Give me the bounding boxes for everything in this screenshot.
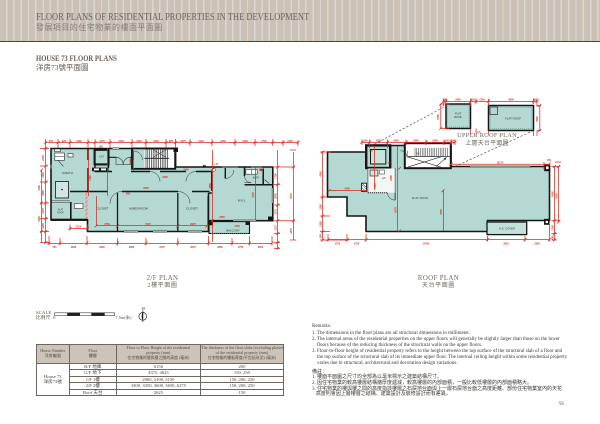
svg-text:4500: 4500 — [508, 98, 514, 101]
svg-text:2975: 2975 — [190, 223, 196, 226]
svg-text:4125: 4125 — [234, 225, 240, 228]
svg-text:2250: 2250 — [258, 246, 264, 249]
svg-text:2250: 2250 — [220, 140, 226, 143]
svg-text:B.R.1: B.R.1 — [238, 199, 246, 203]
svg-text:1275: 1275 — [275, 225, 278, 231]
svg-text:FLAT ROOF: FLAT ROOF — [505, 116, 521, 120]
svg-text:11175: 11175 — [497, 161, 504, 164]
svg-text:FLAT: FLAT — [58, 209, 64, 212]
svg-text:1975: 1975 — [42, 208, 45, 214]
svg-text:2450: 2450 — [437, 114, 440, 120]
svg-text:1950: 1950 — [153, 140, 159, 143]
svg-text:M.BATH: M.BATH — [62, 171, 73, 175]
svg-text:3125: 3125 — [252, 192, 255, 198]
svg-text:4700: 4700 — [344, 188, 350, 191]
svg-text:1750: 1750 — [354, 242, 360, 245]
svg-text:2750: 2750 — [104, 223, 110, 226]
svg-text:2825: 2825 — [71, 246, 77, 249]
svg-text:3600: 3600 — [38, 216, 41, 222]
svg-text:1250: 1250 — [479, 98, 485, 101]
svg-text:2150: 2150 — [76, 226, 82, 229]
svg-text:2500: 2500 — [536, 116, 539, 122]
svg-text:1425: 1425 — [287, 140, 293, 143]
svg-text:2300: 2300 — [534, 242, 540, 245]
svg-text:650: 650 — [551, 235, 554, 240]
svg-text:1575: 1575 — [275, 209, 278, 215]
svg-text:1750: 1750 — [238, 246, 244, 249]
svg-text:1000: 1000 — [183, 169, 189, 172]
svg-text:1225: 1225 — [374, 183, 377, 189]
svg-text:3175: 3175 — [159, 246, 165, 249]
svg-text:(−7): (−7) — [214, 163, 219, 166]
svg-text:1150: 1150 — [89, 175, 92, 181]
svg-text:4150: 4150 — [38, 185, 41, 191]
svg-text:2850: 2850 — [129, 246, 135, 249]
svg-text:150: 150 — [443, 98, 448, 101]
svg-text:4850: 4850 — [209, 183, 212, 189]
svg-text:150: 150 — [547, 159, 552, 162]
svg-text:1650: 1650 — [76, 140, 82, 143]
svg-text:2225: 2225 — [162, 176, 168, 179]
svg-text:4500: 4500 — [320, 171, 323, 177]
svg-text:150: 150 — [363, 139, 368, 142]
svg-text:2325: 2325 — [42, 155, 45, 161]
svg-text:5400: 5400 — [551, 191, 554, 197]
svg-text:H.E. COVER: H.E. COVER — [499, 227, 515, 231]
svg-text:CLOSET: CLOSET — [96, 207, 108, 211]
svg-text:1375: 1375 — [99, 140, 105, 143]
svg-text:1750: 1750 — [335, 242, 341, 245]
svg-text:1900: 1900 — [320, 204, 323, 210]
svg-text:4025: 4025 — [440, 209, 443, 215]
svg-text:900: 900 — [369, 150, 374, 153]
svg-text:1725: 1725 — [261, 140, 267, 143]
svg-text:1300: 1300 — [136, 140, 142, 143]
svg-text:FLAT: FLAT — [455, 112, 462, 116]
svg-text:5525: 5525 — [556, 193, 559, 199]
svg-text:1300: 1300 — [551, 225, 554, 231]
svg-text:925: 925 — [62, 140, 67, 143]
svg-text:1875: 1875 — [290, 228, 293, 234]
svg-text:2350: 2350 — [219, 216, 225, 219]
svg-text:3075: 3075 — [190, 246, 196, 249]
svg-text:FLAT ROOF: FLAT ROOF — [412, 196, 429, 200]
svg-text:2450: 2450 — [455, 98, 461, 101]
svg-text:2050: 2050 — [275, 193, 278, 199]
svg-text:1850: 1850 — [393, 139, 399, 142]
svg-text:3525: 3525 — [503, 242, 509, 245]
svg-text:850: 850 — [320, 233, 323, 238]
svg-text:2125: 2125 — [198, 140, 204, 143]
svg-text:DN: DN — [416, 152, 420, 155]
svg-text:3050: 3050 — [99, 246, 105, 249]
svg-text:ROOF: ROOF — [454, 115, 462, 119]
svg-text:925: 925 — [169, 140, 174, 143]
svg-text:2350: 2350 — [217, 246, 223, 249]
svg-text:BATH: BATH — [253, 177, 259, 180]
svg-text:750: 750 — [52, 246, 57, 249]
svg-text:1750: 1750 — [275, 173, 278, 179]
svg-text:2000: 2000 — [413, 139, 419, 142]
svg-text:5375: 5375 — [290, 193, 293, 199]
svg-text:550: 550 — [471, 98, 476, 101]
svg-text:6275: 6275 — [395, 207, 398, 213]
svg-text:150: 150 — [533, 98, 538, 101]
svg-text:2150: 2150 — [118, 140, 124, 143]
svg-text:M.BEDROOM: M.BEDROOM — [129, 207, 148, 211]
svg-text:1900: 1900 — [42, 172, 45, 178]
svg-text:CLOSET: CLOSET — [186, 207, 198, 211]
svg-text:11450: 11450 — [423, 242, 430, 245]
svg-text:LIFT: LIFT — [99, 156, 104, 159]
svg-text:1550: 1550 — [320, 221, 323, 227]
svg-text:ROOF: ROOF — [57, 213, 64, 215]
svg-text:150: 150 — [388, 162, 393, 165]
svg-text:A/C: A/C — [382, 177, 386, 180]
svg-text:1625: 1625 — [42, 223, 45, 229]
svg-text:2450: 2450 — [390, 175, 393, 181]
svg-text:2150: 2150 — [130, 159, 133, 165]
svg-text:900: 900 — [126, 193, 131, 196]
svg-text:5725: 5725 — [145, 223, 151, 226]
svg-text:1950: 1950 — [242, 140, 248, 143]
svg-text:2625: 2625 — [42, 190, 45, 196]
svg-text:575: 575 — [49, 140, 54, 143]
svg-text:2850: 2850 — [143, 187, 149, 190]
svg-text:1375: 1375 — [180, 140, 186, 143]
svg-text:BALCONY: BALCONY — [226, 228, 240, 232]
svg-text:⌐150: ⌐150 — [97, 146, 103, 149]
